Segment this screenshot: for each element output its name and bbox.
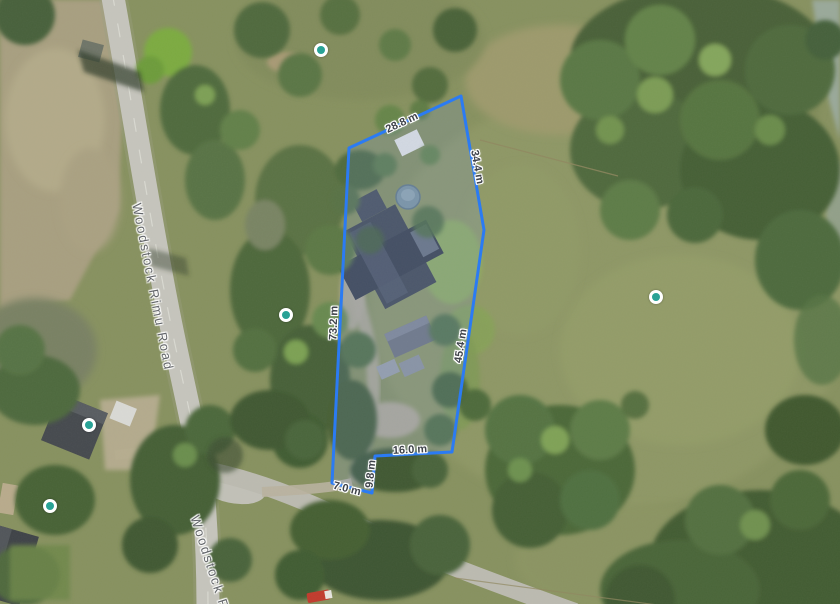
map-marker[interactable] (314, 43, 328, 57)
marker-dot (317, 46, 325, 54)
map-marker[interactable] (43, 499, 57, 513)
parcel-polygon[interactable] (332, 96, 484, 493)
parcel-layer (0, 0, 840, 604)
marker-dot (85, 421, 93, 429)
map-marker[interactable] (279, 308, 293, 322)
map-marker[interactable] (82, 418, 96, 432)
map-marker[interactable] (649, 290, 663, 304)
marker-dot (282, 311, 290, 319)
marker-dot (652, 293, 660, 301)
map-viewport[interactable]: 28.8 m34.4 m45.4 m73.2 m16.0 m9.8 m7.0 m… (0, 0, 840, 604)
marker-dot (46, 502, 54, 510)
